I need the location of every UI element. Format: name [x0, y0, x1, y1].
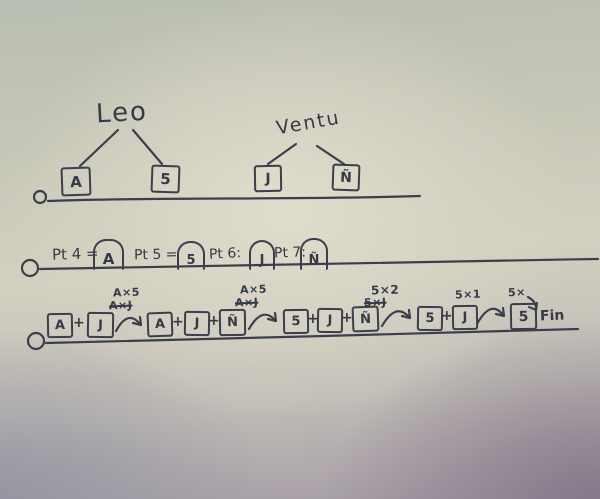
seq-g5-term-5: 5 [510, 303, 537, 330]
seq-g1-note: A×5 [113, 286, 140, 300]
seq-g4-term-j: J [452, 305, 478, 330]
tree-label-leo: Leo [95, 97, 148, 130]
seq-g3-term-5: 5 [283, 309, 309, 334]
assignment-2-prefix: Pt 5 = [134, 247, 178, 264]
tree-ventu-leaf-n: Ñ [332, 164, 361, 192]
curved-arrow-1 [116, 317, 141, 331]
sequence-end-label: Fin [540, 308, 565, 325]
paper-photo: Leo A 5 Ventu J Ñ Pt 4 = A Pt 5 = 5 Pt 6… [0, 0, 600, 499]
plus-sign: + [172, 314, 184, 330]
baseline-1 [48, 196, 420, 201]
curved-arrow-4 [477, 308, 504, 324]
seq-g2-term-n: Ñ [219, 309, 246, 336]
seq-g3-term-n: Ñ [352, 306, 380, 333]
seq-g3-note-struck: 5×J [364, 296, 387, 310]
tree-ventu-leaf-j: J [254, 165, 282, 192]
seq-g1-note-struck: A×J [109, 299, 133, 313]
seq-g2-term-a: A [147, 312, 174, 338]
ventu-branch-right [317, 146, 344, 164]
seq-g2-term-j: J [184, 311, 210, 336]
assignment-3-prefix: Pt 6: [209, 245, 242, 263]
plus-sign: + [73, 315, 85, 331]
ventu-branch-left [268, 144, 296, 164]
leo-branch-left [80, 130, 118, 166]
seq-g5-note: 5× [508, 286, 526, 300]
seq-g1-term-a: A [47, 313, 73, 338]
seq-g2-note-struck: A×J [235, 296, 259, 310]
assignment-1-prefix: Pt 4 = [52, 244, 99, 264]
assignment-3-value: J [249, 240, 275, 270]
seq-g2-note: A×5 [240, 283, 267, 297]
tree-leo-leaf-5: 5 [151, 165, 181, 194]
assignment-1-value: A [93, 239, 124, 270]
tree-leo-leaf-a: A [61, 166, 92, 196]
seq-g4-note: 5×1 [455, 288, 481, 302]
baseline-3 [46, 329, 578, 343]
seq-g1-term-j: J [87, 312, 114, 338]
seq-g3-term-j: J [317, 308, 343, 333]
leo-branch-right [133, 130, 162, 164]
line1-start-circle [34, 191, 46, 203]
assignment-2-value: 5 [177, 241, 205, 270]
line3-start-circle [28, 333, 44, 349]
assignment-4-value: Ñ [300, 238, 328, 270]
seq-g4-term-5: 5 [417, 306, 443, 331]
curved-arrow-2 [249, 313, 276, 329]
curved-arrow-3 [382, 310, 410, 326]
line2-start-circle [22, 260, 38, 276]
